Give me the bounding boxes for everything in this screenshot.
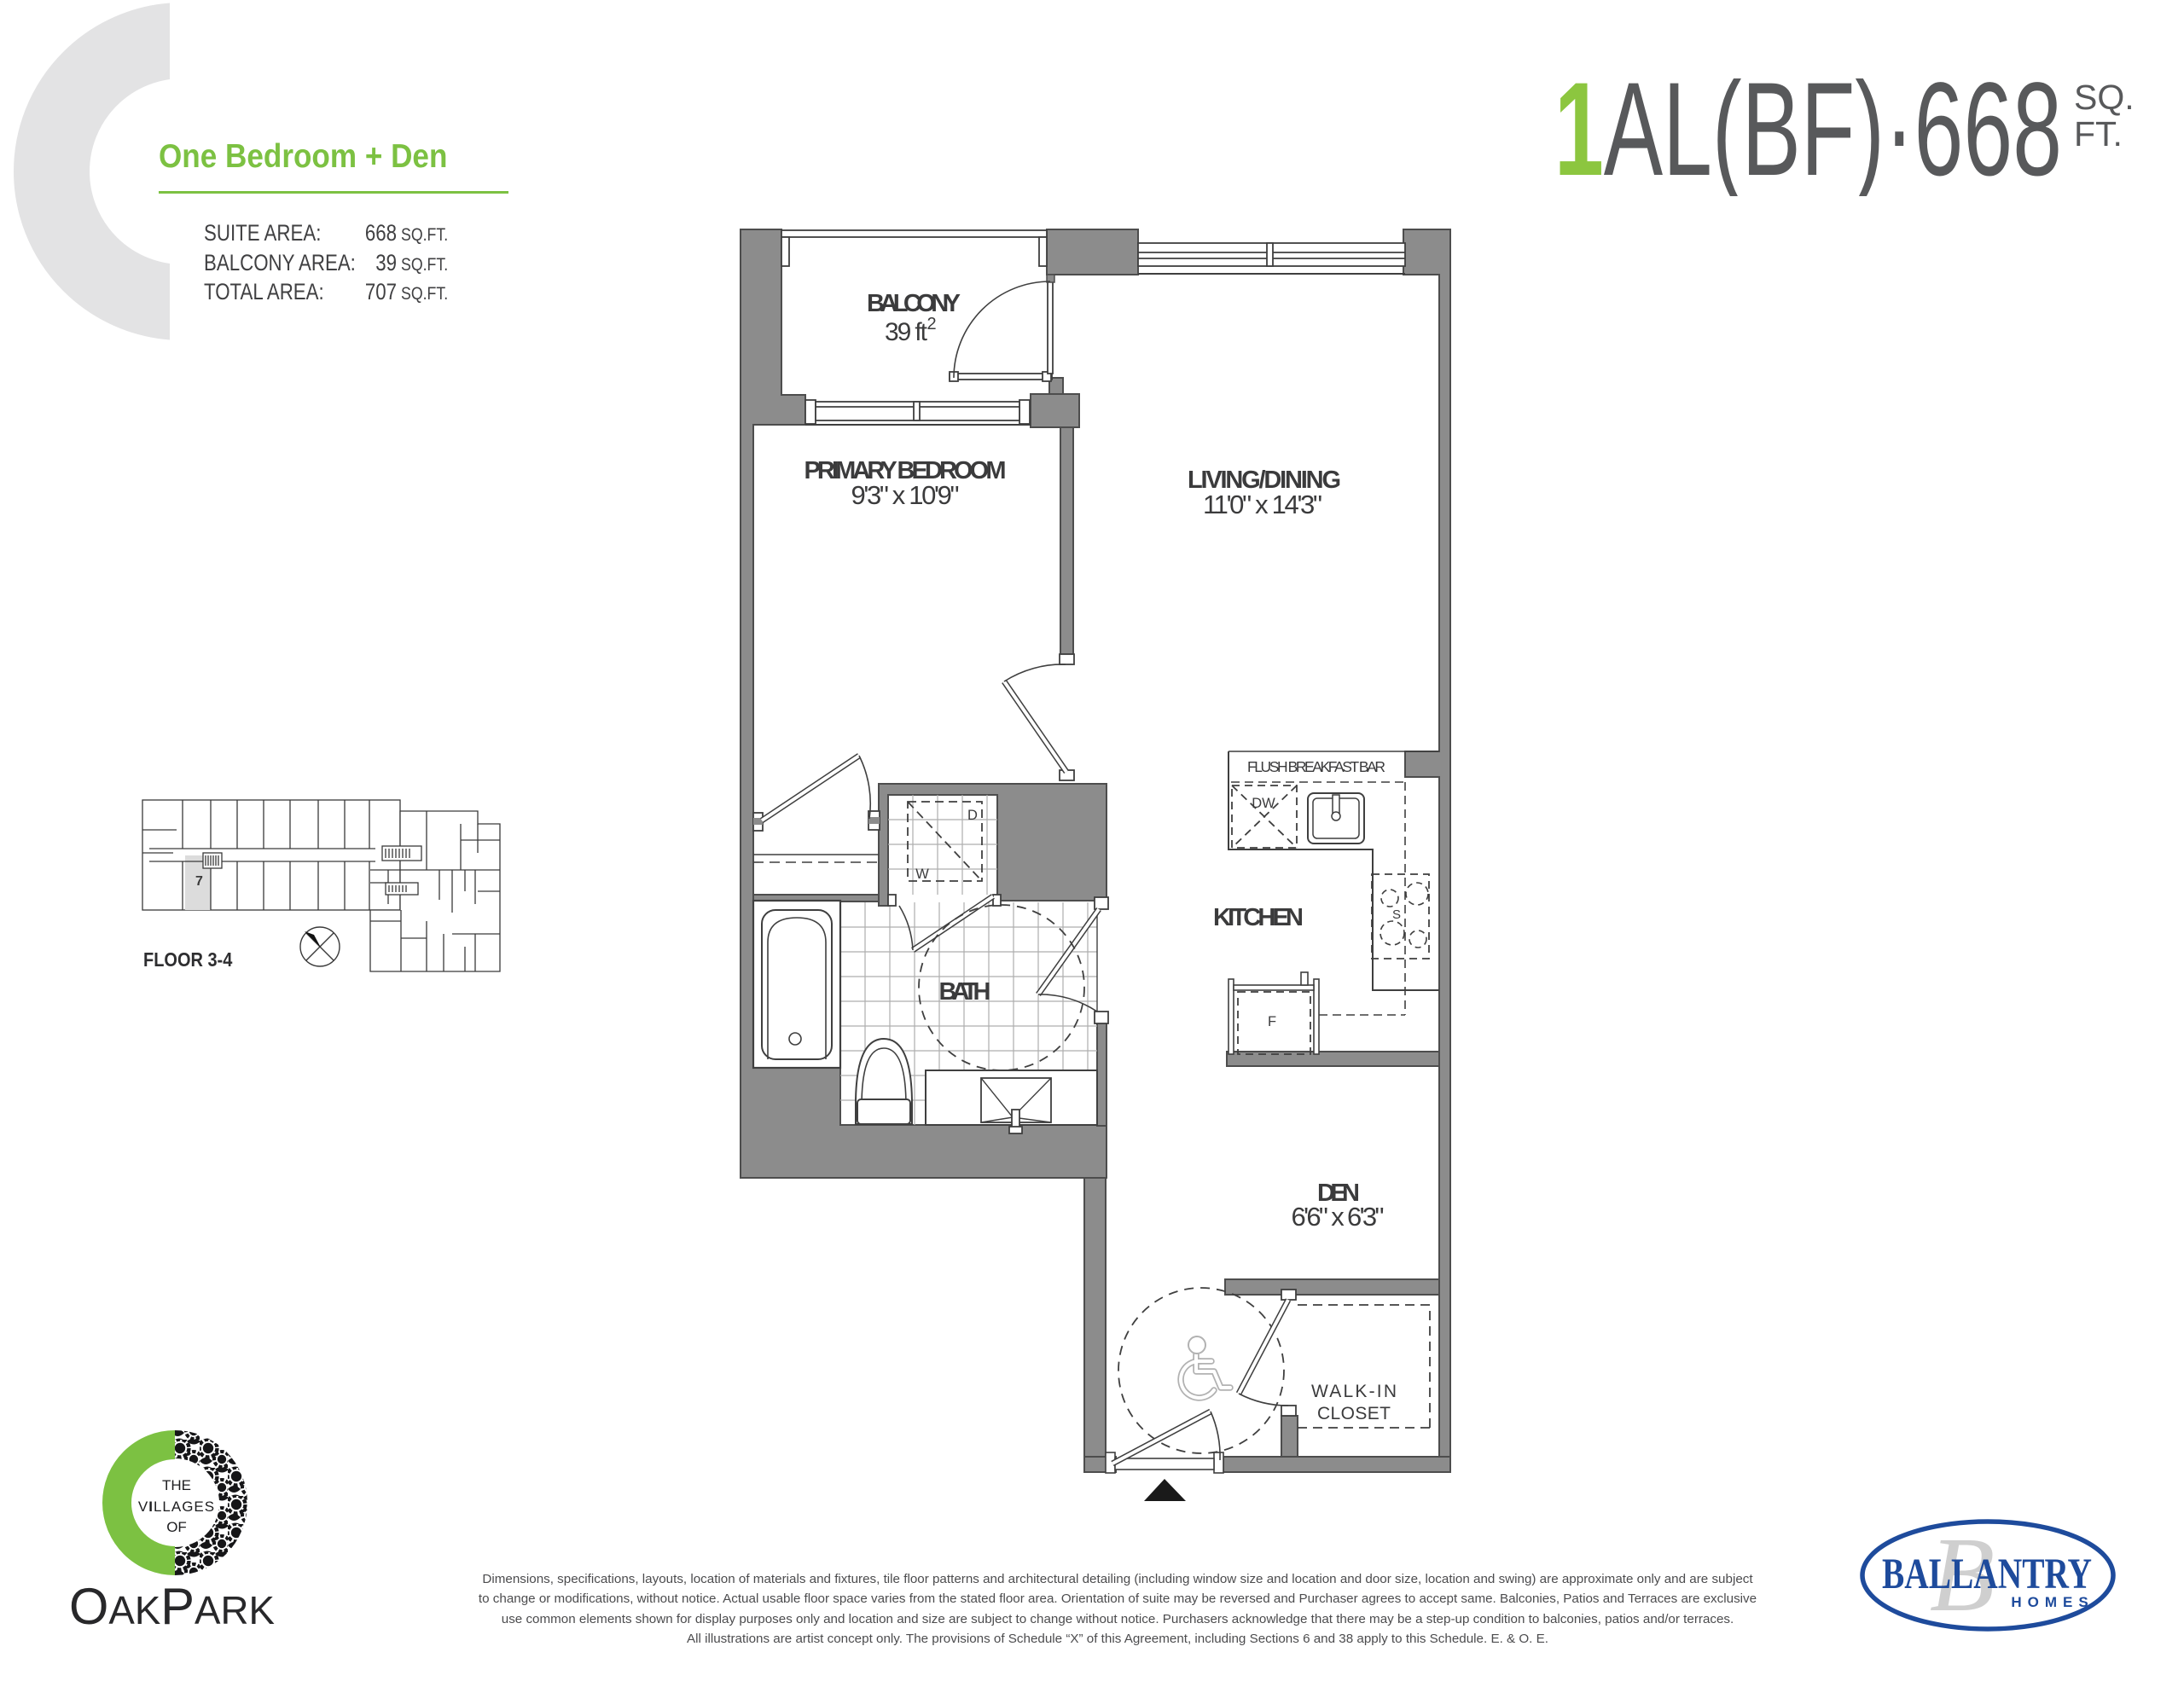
- svg-text:11'0" x 14'3": 11'0" x 14'3": [1203, 490, 1322, 519]
- svg-text:CLOSET: CLOSET: [1317, 1404, 1391, 1423]
- svg-text:D: D: [967, 808, 978, 823]
- svg-text:HOMES: HOMES: [2011, 1594, 2094, 1610]
- svg-text:BALLANTRY: BALLANTRY: [1882, 1551, 2092, 1598]
- svg-text:VILLAGES: VILLAGES: [138, 1499, 215, 1515]
- svg-text:W: W: [915, 867, 929, 882]
- svg-text:7: 7: [195, 874, 203, 889]
- svg-text:OAKPARK: OAKPARK: [69, 1578, 275, 1635]
- svg-text:39 ft: 39 ft: [885, 318, 928, 346]
- svg-text:BALCONY: BALCONY: [867, 290, 961, 317]
- svg-text:6'6" x 6'3": 6'6" x 6'3": [1292, 1202, 1385, 1232]
- svg-text:DW: DW: [1252, 796, 1275, 811]
- svg-text:OF: OF: [166, 1519, 187, 1535]
- svg-text:FT.: FT.: [2074, 114, 2123, 154]
- svg-text:THE: THE: [162, 1477, 191, 1493]
- svg-text:KITCHEN: KITCHEN: [1213, 904, 1304, 931]
- svg-text:SQ.: SQ.: [2074, 78, 2135, 117]
- svg-text:WALK-IN: WALK-IN: [1311, 1382, 1397, 1401]
- svg-text:1AL(BF)·668: 1AL(BF)·668: [1554, 55, 2062, 196]
- svg-text:FLUSH BREAKFAST BAR: FLUSH BREAKFAST BAR: [1247, 758, 1385, 775]
- svg-text:9'3" x 10'9": 9'3" x 10'9": [851, 480, 960, 510]
- svg-text:F: F: [1268, 1014, 1276, 1029]
- svg-text:BATH: BATH: [939, 978, 991, 1006]
- svg-text:2: 2: [926, 315, 936, 333]
- svg-text:S: S: [1392, 907, 1401, 922]
